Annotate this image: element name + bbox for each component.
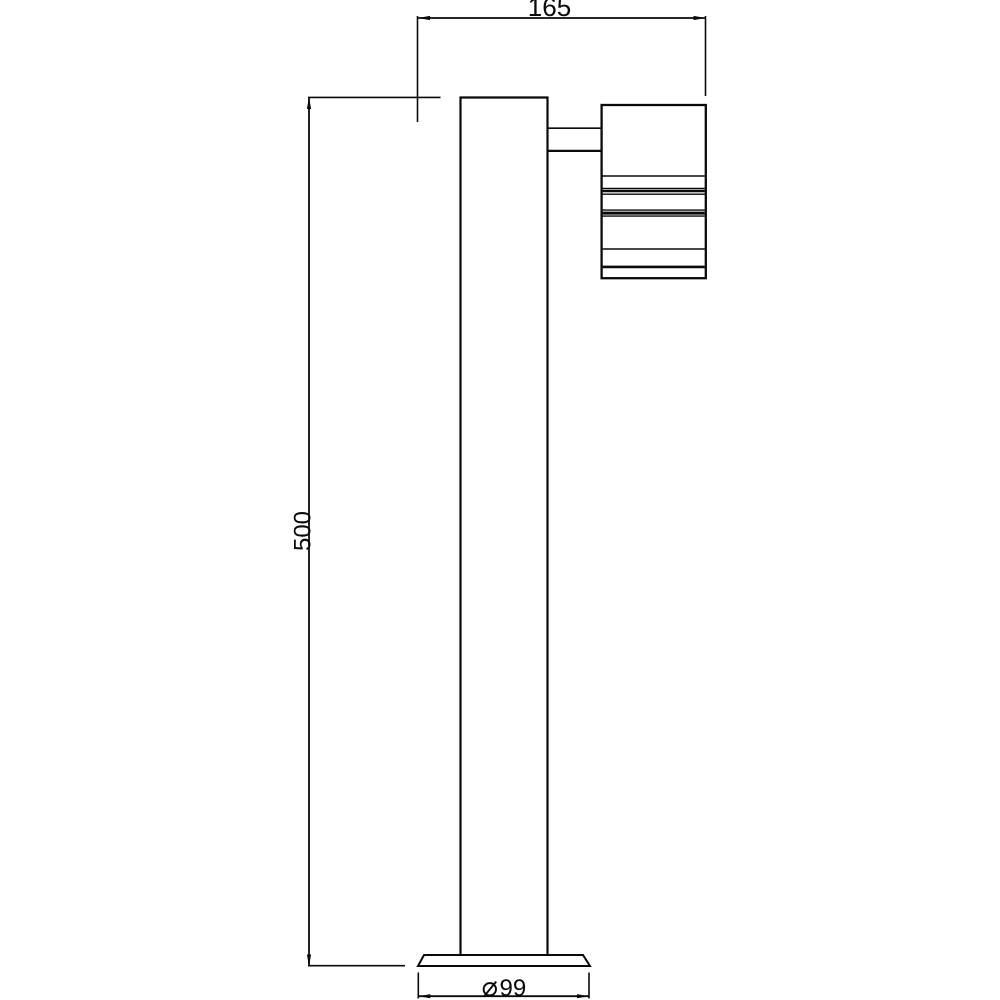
svg-text:99: 99 — [500, 975, 527, 1000]
svg-text:165: 165 — [528, 0, 571, 22]
svg-text:500: 500 — [290, 511, 317, 551]
